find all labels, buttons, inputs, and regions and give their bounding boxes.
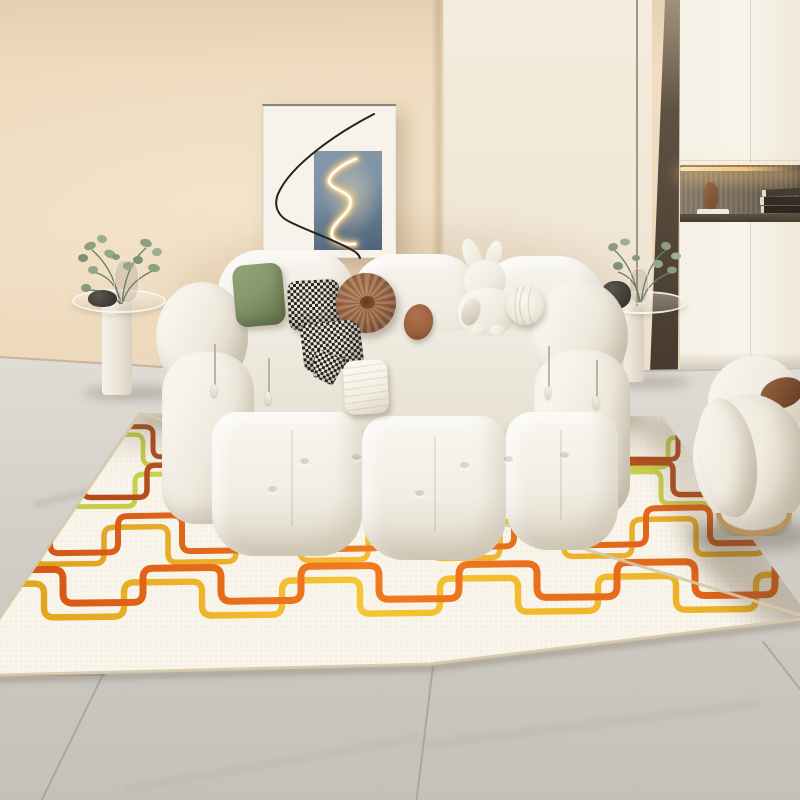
bunny-foot — [472, 324, 487, 335]
sofa-seam — [434, 436, 436, 532]
living-room-photo — [0, 0, 800, 800]
bunny-foot — [490, 325, 505, 336]
tuft-button — [268, 486, 277, 492]
tuft-button — [300, 458, 309, 464]
tuft-button — [460, 462, 469, 468]
ball-seams — [506, 285, 544, 325]
sofa-seam — [560, 430, 562, 520]
armchair — [696, 352, 800, 562]
vase-glass-left — [114, 260, 139, 303]
pillow-green — [231, 262, 286, 328]
donut-center — [360, 296, 375, 309]
pillow-ball — [506, 285, 544, 325]
string-bead — [545, 386, 551, 399]
side-table-left-base — [102, 301, 132, 395]
string-bead — [211, 384, 217, 397]
tuft-button — [560, 452, 569, 458]
sofa-seam — [291, 430, 293, 526]
lumbar-ribs — [343, 359, 390, 415]
pillow-lumbar-floor — [343, 359, 390, 415]
string-bead — [265, 392, 271, 405]
tuft-button — [352, 454, 361, 460]
sofa-seat-right — [506, 412, 618, 550]
tuft-button — [504, 456, 513, 462]
bowl-dark-left — [88, 290, 117, 307]
tuft-button — [415, 490, 424, 496]
sofa-seat-left — [212, 412, 362, 556]
string-bead — [593, 396, 599, 409]
